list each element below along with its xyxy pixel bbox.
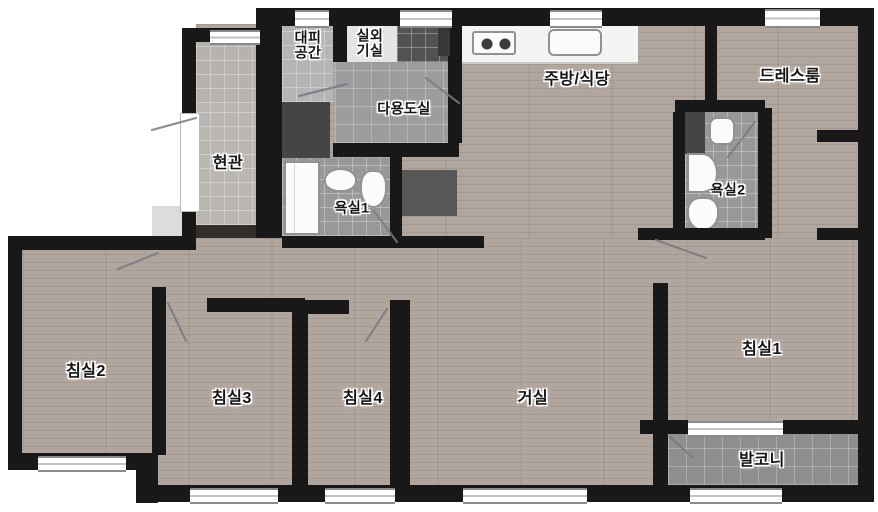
stove-icon	[472, 31, 516, 55]
kitchen-sink-icon	[548, 29, 602, 56]
window	[400, 10, 452, 28]
wall	[783, 420, 858, 434]
bathroom2-toilet-icon	[687, 197, 719, 231]
wall	[8, 236, 196, 250]
window	[765, 9, 820, 28]
storage-box	[402, 170, 457, 216]
room-label-evacuation-space: 대피 공간	[295, 31, 322, 62]
wall	[333, 143, 459, 157]
entrance-step	[196, 225, 258, 238]
wall	[390, 157, 402, 248]
wall	[673, 112, 685, 236]
room-label-outdoor-unit-room: 실외 기실	[357, 29, 384, 60]
entrance-closet-tiles	[196, 42, 258, 103]
room-label-living-room: 거실	[518, 390, 548, 408]
wall	[292, 300, 308, 487]
wall	[333, 8, 347, 62]
wall	[152, 287, 166, 455]
washbasin-icon	[324, 168, 357, 192]
exterior-cutout	[0, 470, 152, 512]
floor-plan: 대피 공간 실외 기실 다용도실 주방/식당 드레스룸 현관 욕실1 욕실2 침…	[0, 0, 878, 512]
bathroom2-cabinet	[685, 112, 705, 154]
room-label-dressroom: 드레스룸	[760, 68, 821, 86]
room-label-bathroom1: 욕실1	[334, 200, 369, 215]
entry-door	[180, 113, 200, 212]
window	[210, 30, 260, 45]
wall	[390, 300, 410, 487]
window	[325, 488, 395, 504]
room-label-bedroom2: 침실2	[66, 363, 106, 381]
room-label-bedroom1: 침실1	[742, 341, 782, 359]
room-label-entrance: 현관	[213, 155, 243, 173]
wall	[817, 228, 858, 240]
window	[690, 488, 782, 504]
wall	[207, 298, 305, 312]
kitchen-column	[438, 26, 450, 56]
window	[463, 488, 587, 504]
wall	[858, 8, 874, 502]
room-label-bedroom3: 침실3	[212, 390, 252, 408]
wall	[640, 420, 688, 434]
room-label-kitchen-dining: 주방/식당	[544, 71, 610, 89]
window	[38, 456, 126, 472]
window	[190, 488, 278, 504]
room-label-utility-room: 다용도실	[377, 101, 431, 116]
evacuation-shaft	[282, 102, 330, 158]
window	[295, 10, 329, 28]
room-label-bedroom4: 침실4	[343, 390, 383, 408]
wall	[282, 236, 484, 248]
wall	[675, 100, 765, 112]
window	[550, 10, 602, 28]
wall	[638, 228, 765, 240]
wall	[292, 300, 349, 314]
room-label-balcony: 발코니	[739, 452, 785, 470]
wall	[758, 108, 772, 238]
wall	[448, 18, 462, 143]
wall	[8, 236, 22, 470]
room-label-bathroom2: 욕실2	[710, 182, 745, 197]
bathroom2-basin-icon	[709, 117, 735, 145]
window	[688, 421, 783, 437]
wall	[817, 130, 858, 142]
wall	[653, 283, 668, 422]
shower-icon	[284, 161, 320, 235]
